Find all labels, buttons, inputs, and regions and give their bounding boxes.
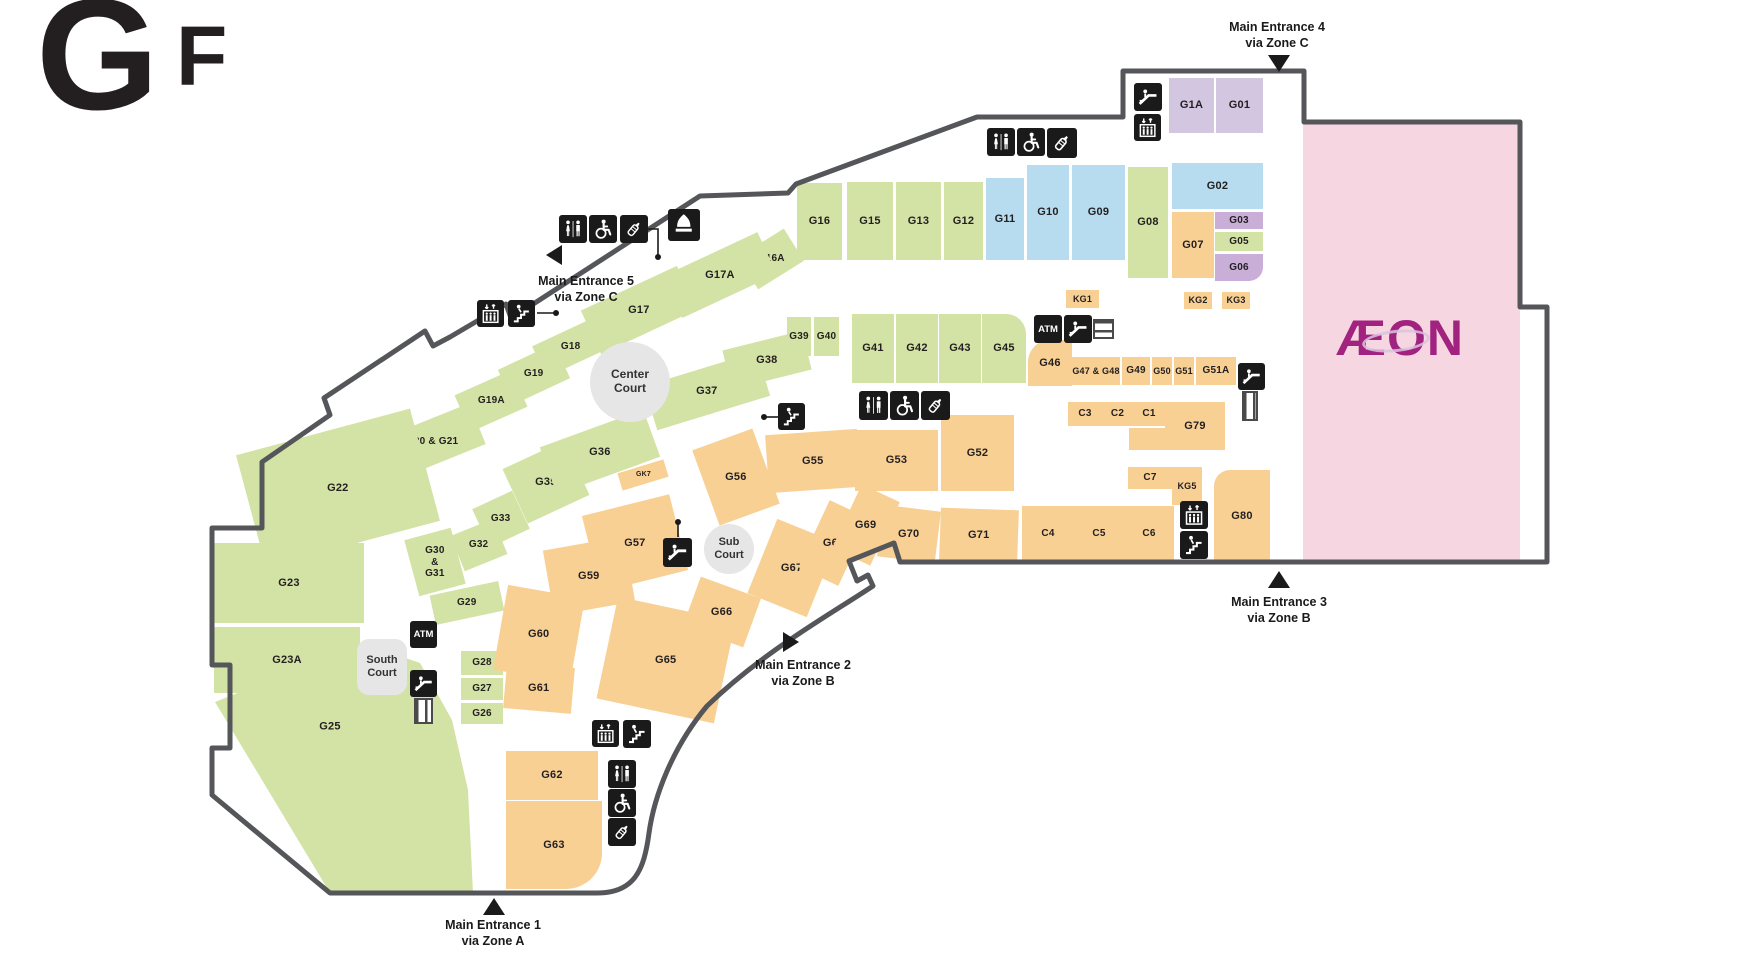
stairs-icon [1180, 531, 1208, 559]
escalator-icon [663, 538, 692, 567]
shop-label-G10: G10 [1037, 206, 1058, 219]
shop-G45: G45 [982, 314, 1026, 383]
shop-KG1: KG1 [1066, 290, 1099, 308]
shop-G11: G11 [986, 178, 1024, 260]
shop-G1A: G1A [1169, 78, 1214, 133]
main-entrance-2-arrow-icon [783, 632, 799, 652]
shop-label-G37: G37 [696, 385, 717, 398]
shop-G26: G26 [461, 703, 503, 724]
escalator-icon [1134, 83, 1162, 111]
shop-label-G52: G52 [967, 447, 988, 460]
wc-icon [608, 760, 636, 788]
shop-G62: G62 [506, 751, 598, 800]
shop-label-G53: G53 [886, 454, 907, 467]
shop-label-G01: G01 [1229, 99, 1250, 112]
shop-G03: G03 [1215, 212, 1263, 229]
wheelchair-icon [589, 215, 617, 243]
wc-icon [987, 128, 1015, 156]
shop-G53: G53 [855, 430, 938, 491]
shop-label-G18: G18 [561, 341, 581, 353]
shop-label-G19A: G19A [478, 395, 505, 407]
shop-G01: G01 [1216, 78, 1263, 133]
wc-icon [559, 215, 587, 243]
facility-pointer-dot [761, 414, 767, 420]
shop-G07: G07 [1172, 212, 1214, 278]
shop-label-G17A: G17A [705, 269, 735, 282]
elevator-icon [592, 720, 619, 747]
shop-label-KG5: KG5 [1177, 481, 1196, 491]
shop-G05: G05 [1215, 232, 1263, 251]
shop-label-G29: G29 [457, 597, 477, 609]
shop-G02: G02 [1172, 163, 1263, 209]
floor-letter-g: G [36, 0, 159, 134]
shop-label-G45: G45 [993, 342, 1014, 355]
shop-label-G61: G61 [528, 682, 549, 695]
shop-label-G33: G33 [491, 513, 511, 525]
shop-label-G47-G48: G47 & G48 [1072, 366, 1119, 376]
floor-letter-f: F [176, 14, 227, 98]
escalator-ramp-icon [1242, 391, 1258, 421]
stairs-icon [778, 403, 805, 430]
shop-label-G69: G69 [855, 519, 876, 532]
facility-pointer-dot [553, 310, 559, 316]
shop-label-G60: G60 [528, 628, 549, 641]
center-court: Center Court [590, 342, 670, 422]
escalator-icon [1238, 363, 1265, 390]
shop-label-G19: G19 [524, 368, 544, 380]
shop-G06: G06 [1215, 254, 1263, 281]
shop-label-G36: G36 [589, 446, 610, 459]
shop-label-C6: C6 [1142, 528, 1155, 540]
shop-label-G56: G56 [725, 471, 746, 484]
facility-pointer-line [648, 229, 658, 257]
shop-label-G32: G32 [469, 539, 489, 551]
shop-label-G26: G26 [472, 708, 492, 720]
shop-label-G71: G71 [968, 529, 989, 542]
shop-G09: G09 [1072, 165, 1125, 260]
stairs-icon [623, 720, 651, 748]
shop-label-G50: G50 [1153, 366, 1171, 376]
mall-floorplan-gf: G F G1AG01G02G03G05G06G07G08G09G10G11G12… [0, 0, 1746, 958]
shop-G12: G12 [944, 182, 983, 260]
shop-C6: C6 [1124, 506, 1174, 562]
shop-label-G65: G65 [655, 654, 676, 667]
facility-pointer-dot [655, 254, 661, 260]
shop-label-G62: G62 [541, 769, 562, 782]
shop-label-C2: C2 [1111, 408, 1124, 420]
shop-G41: G41 [852, 314, 894, 383]
shop-label-G55: G55 [802, 455, 823, 468]
shop-label-G1A: G1A [1180, 99, 1203, 112]
elevator-icon [477, 300, 504, 327]
shop-G46: G46 [1028, 340, 1072, 386]
wheelchair-icon [1017, 128, 1045, 156]
baby-icon [1047, 128, 1077, 158]
shop-label-KG2: KG2 [1188, 295, 1207, 305]
shop-label-G57: G57 [624, 537, 645, 550]
shop-label-G08: G08 [1137, 216, 1158, 229]
escalator-icon [1064, 315, 1092, 343]
shop-label-G13: G13 [908, 215, 929, 228]
shop-label-G27: G27 [472, 683, 492, 695]
shop-label-C1: C1 [1142, 408, 1155, 420]
shop-label-G79: G79 [1184, 420, 1205, 433]
shop-label-G40: G40 [817, 331, 837, 343]
shop-KG3: KG3 [1222, 292, 1250, 309]
escalator-ramp-icon [414, 698, 433, 724]
shop-c-band [1129, 428, 1167, 450]
baby-icon [620, 215, 648, 243]
shop-label-G23: G23 [278, 577, 299, 590]
shop-label-G30-G31: G30 & G31 [425, 545, 445, 580]
shop-label-G66: G66 [711, 606, 732, 619]
shop-label-C7: C7 [1143, 472, 1156, 484]
baby-icon [608, 818, 636, 846]
shop-label-GK7: GK7 [635, 471, 650, 479]
shop-label-G06: G06 [1229, 262, 1249, 274]
shop-G10: G10 [1027, 165, 1069, 260]
elevator-icon [1180, 501, 1208, 529]
shop-C2: C2 [1102, 402, 1133, 426]
shop-G55: G55 [765, 429, 861, 493]
main-entrance-1-label: Main Entrance 1via Zone A [418, 918, 568, 949]
escalator-ramp-icon [1093, 319, 1114, 339]
escalator-icon [410, 670, 437, 697]
shop-label-G51: G51 [1175, 366, 1193, 376]
main-entrance-4-arrow-icon [1268, 55, 1290, 72]
shop-label-G02: G02 [1207, 180, 1228, 193]
shop-label-KG1: KG1 [1073, 294, 1092, 304]
shop-label-G46: G46 [1039, 357, 1060, 370]
shop-label-C3: C3 [1078, 408, 1091, 420]
shop-label-G17: G17 [628, 304, 649, 317]
shop-G15: G15 [847, 182, 893, 260]
main-entrance-5-label: Main Entrance 5via Zone C [511, 274, 661, 305]
shop-G16: G16 [797, 183, 842, 260]
shop-label-G05: G05 [1229, 236, 1249, 248]
wheelchair-icon [890, 391, 919, 420]
shop-label-G28: G28 [472, 657, 492, 669]
shop-C3: C3 [1068, 402, 1102, 426]
shop-label-G22: G22 [327, 482, 348, 495]
shop-KG5: KG5 [1172, 467, 1202, 505]
shop-G23: G23 [214, 543, 364, 623]
shop-G13: G13 [896, 182, 941, 260]
shop-label-G42: G42 [906, 342, 927, 355]
shop-label-G23A: G23A [272, 654, 302, 667]
shop-G40: G40 [814, 317, 839, 356]
shop-G63: G63 [506, 801, 602, 889]
main-entrance-3-label: Main Entrance 3via Zone B [1204, 595, 1354, 626]
main-entrance-3-arrow-icon [1268, 571, 1290, 588]
shop-G27: G27 [461, 678, 503, 700]
shop-G08: G08 [1128, 167, 1168, 278]
main-entrance-5-arrow-icon [546, 245, 562, 265]
shop-G39: G39 [787, 317, 811, 356]
shop-C4: C4 [1022, 506, 1074, 562]
main-entrance-2-label: Main Entrance 2via Zone B [728, 658, 878, 689]
shop-G80: G80 [1214, 470, 1270, 562]
shop-G49: G49 [1122, 357, 1150, 385]
shop-G51A: G51A [1196, 357, 1236, 385]
main-entrance-4-label: Main Entrance 4via Zone C [1202, 20, 1352, 51]
atm-icon: ATM [410, 621, 437, 648]
shop-KG2: KG2 [1184, 292, 1212, 309]
shop-label-G07: G07 [1182, 239, 1203, 252]
shop-label-G43: G43 [949, 342, 970, 355]
shop-label-KG3: KG3 [1226, 295, 1245, 305]
south-court: South Court [357, 639, 407, 695]
shop-G70: G70 [877, 505, 941, 564]
shop-G61: G61 [503, 662, 575, 714]
shop-label-G11: G11 [995, 213, 1016, 226]
elevator-icon [1134, 114, 1161, 141]
shop-label-G51A: G51A [1203, 365, 1230, 377]
shop-label-G09: G09 [1088, 206, 1109, 219]
prayer-icon [668, 209, 700, 241]
shop-label-G63: G63 [543, 839, 564, 852]
shop-label-G12: G12 [953, 215, 974, 228]
shop-label-G59: G59 [578, 570, 599, 583]
shop-label-G41: G41 [862, 342, 883, 355]
shop-label-C5: C5 [1092, 528, 1105, 540]
shop-G43: G43 [939, 314, 981, 383]
baby-icon [921, 391, 950, 420]
shop-G79: G79 [1165, 402, 1225, 450]
shop-G51: G51 [1174, 357, 1194, 385]
shop-label-G16: G16 [809, 215, 830, 228]
shop-label-C4: C4 [1041, 528, 1054, 540]
shop-label-G38: G38 [756, 354, 777, 367]
sub-court: Sub Court [704, 524, 754, 574]
main-entrance-1-arrow-icon [483, 898, 505, 915]
shop-G50: G50 [1152, 357, 1172, 385]
shop-C7: C7 [1128, 467, 1172, 489]
wheelchair-icon [608, 789, 636, 817]
shop-label-G03: G03 [1229, 215, 1249, 227]
shop-label-G80: G80 [1231, 510, 1252, 523]
wc-icon [859, 391, 888, 420]
shop-C5: C5 [1074, 506, 1124, 562]
shop-label-G49: G49 [1126, 365, 1146, 377]
shop-label-G70: G70 [898, 528, 919, 541]
shop-G42: G42 [896, 314, 938, 383]
shop-G52: G52 [941, 415, 1014, 491]
shop-label-G15: G15 [859, 215, 880, 228]
shop-label-G25: G25 [319, 721, 340, 734]
shop-label-G39: G39 [789, 331, 809, 343]
shop-G47-G48: G47 & G48 [1072, 357, 1120, 385]
shop-C1: C1 [1133, 402, 1165, 426]
atm-icon: ATM [1034, 315, 1062, 343]
shop-G71: G71 [939, 508, 1019, 564]
